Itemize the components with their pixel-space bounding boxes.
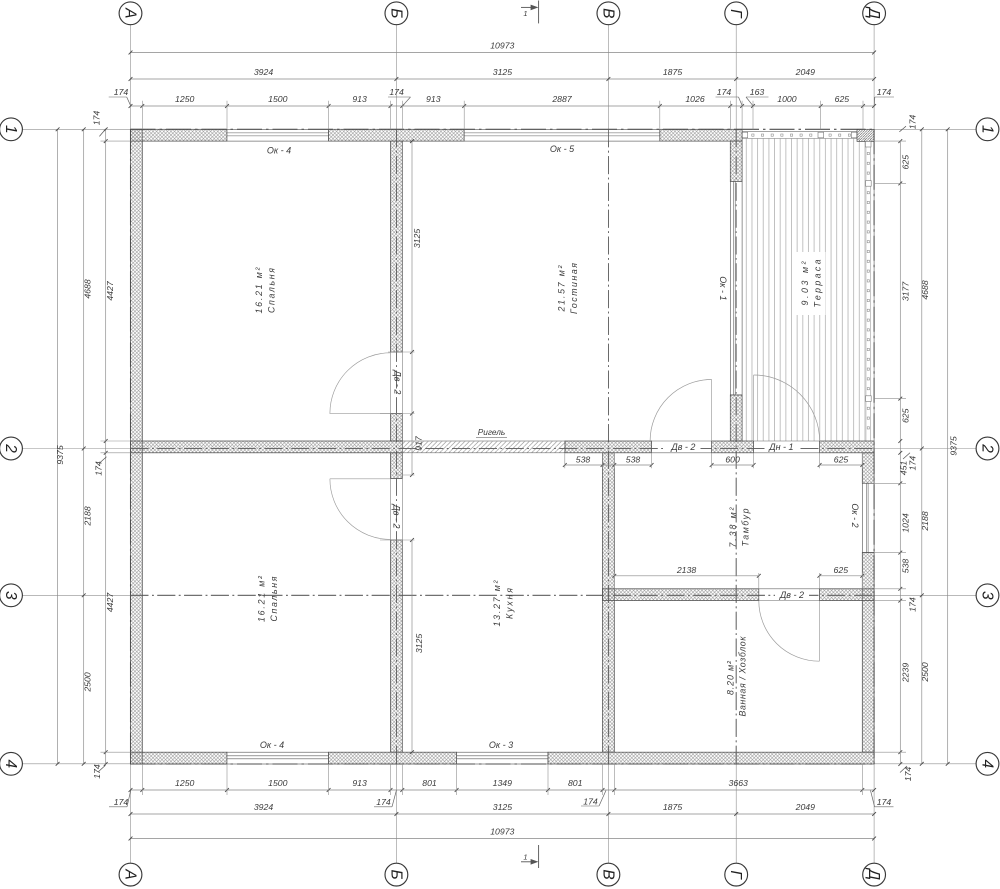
svg-text:625: 625 <box>900 408 910 423</box>
svg-text:Д: Д <box>865 867 882 880</box>
svg-text:4: 4 <box>978 759 995 768</box>
svg-text:2500: 2500 <box>83 672 93 692</box>
svg-text:Дв - 2: Дв - 2 <box>391 503 401 528</box>
svg-text:4688: 4688 <box>83 279 93 298</box>
svg-text:4688: 4688 <box>920 280 930 299</box>
svg-text:1000: 1000 <box>777 94 796 104</box>
svg-text:9375: 9375 <box>55 445 65 464</box>
svg-text:174: 174 <box>877 87 892 97</box>
svg-text:1250: 1250 <box>175 778 194 788</box>
svg-text:4427: 4427 <box>105 592 115 612</box>
svg-text:174: 174 <box>908 597 918 612</box>
svg-text:2500: 2500 <box>920 662 930 682</box>
svg-text:Ригель: Ригель <box>478 427 506 437</box>
svg-text:1500: 1500 <box>268 94 287 104</box>
svg-text:А: А <box>121 7 138 18</box>
svg-text:913: 913 <box>352 94 367 104</box>
svg-text:174: 174 <box>908 456 918 471</box>
svg-text:Ок - 3: Ок - 3 <box>489 740 513 750</box>
svg-text:Б: Б <box>387 8 404 18</box>
svg-text:1026: 1026 <box>685 94 704 104</box>
svg-text:Дн - 1: Дн - 1 <box>768 442 793 452</box>
svg-text:2138: 2138 <box>676 565 696 575</box>
svg-text:801: 801 <box>422 778 437 788</box>
svg-text:3924: 3924 <box>254 67 273 77</box>
svg-text:8.20 м²: 8.20 м² <box>726 660 736 695</box>
svg-text:174: 174 <box>114 797 129 807</box>
svg-text:7.38 м²: 7.38 м² <box>728 506 738 547</box>
svg-text:2049: 2049 <box>795 67 815 77</box>
svg-text:174: 174 <box>376 797 391 807</box>
svg-text:3125: 3125 <box>493 67 512 77</box>
svg-text:538: 538 <box>576 454 591 464</box>
svg-text:Ок - 5: Ок - 5 <box>550 144 575 154</box>
svg-text:538: 538 <box>900 559 910 574</box>
svg-text:9.03 м²: 9.03 м² <box>800 260 810 305</box>
svg-text:174: 174 <box>92 764 102 779</box>
svg-text:А: А <box>121 868 138 879</box>
svg-text:3: 3 <box>978 591 995 600</box>
svg-text:2887: 2887 <box>551 94 572 104</box>
svg-text:3125: 3125 <box>412 229 422 248</box>
svg-text:174: 174 <box>389 87 404 97</box>
svg-text:174: 174 <box>114 87 129 97</box>
svg-text:451: 451 <box>898 461 908 476</box>
svg-text:Дв - 2: Дв - 2 <box>392 369 402 394</box>
svg-text:Б: Б <box>387 870 404 880</box>
svg-text:913: 913 <box>426 94 441 104</box>
svg-text:16.21 м²: 16.21 м² <box>257 575 267 622</box>
svg-text:1875: 1875 <box>663 67 682 77</box>
svg-text:16.21 м²: 16.21 м² <box>254 266 264 313</box>
svg-text:625: 625 <box>900 155 910 170</box>
svg-text:913: 913 <box>352 778 367 788</box>
svg-text:2188: 2188 <box>83 506 93 526</box>
svg-text:174: 174 <box>908 115 918 130</box>
svg-text:21.57 м²: 21.57 м² <box>557 264 567 312</box>
svg-text:2239: 2239 <box>900 663 910 683</box>
svg-text:3125: 3125 <box>493 802 512 812</box>
svg-text:В: В <box>599 869 616 879</box>
svg-text:Ок - 4: Ок - 4 <box>267 146 291 156</box>
svg-text:2: 2 <box>2 443 19 453</box>
svg-text:625: 625 <box>834 454 849 464</box>
svg-text:Спальня: Спальня <box>269 576 279 621</box>
svg-text:174: 174 <box>717 87 732 97</box>
svg-text:2049: 2049 <box>795 802 815 812</box>
svg-text:1: 1 <box>978 125 995 134</box>
svg-text:Д: Д <box>865 6 882 19</box>
svg-text:1024: 1024 <box>900 513 910 532</box>
svg-text:2: 2 <box>978 443 995 453</box>
svg-text:174: 174 <box>583 796 598 806</box>
svg-text:3: 3 <box>2 591 19 600</box>
svg-text:2188: 2188 <box>920 511 930 531</box>
svg-text:Ок - 2: Ок - 2 <box>850 503 860 527</box>
svg-text:13.27 м²: 13.27 м² <box>492 579 502 626</box>
svg-text:174: 174 <box>92 111 102 126</box>
svg-text:Ок - 1: Ок - 1 <box>718 276 728 300</box>
svg-text:3125: 3125 <box>414 634 424 653</box>
svg-text:Спальня: Спальня <box>267 268 277 313</box>
svg-text:1: 1 <box>523 9 527 18</box>
svg-text:174: 174 <box>94 461 104 476</box>
svg-text:Дв - 2: Дв - 2 <box>670 442 695 452</box>
svg-text:600: 600 <box>725 454 740 464</box>
svg-text:917: 917 <box>414 435 424 451</box>
svg-text:Тамбур: Тамбур <box>741 508 751 546</box>
svg-text:4427: 4427 <box>105 280 115 300</box>
svg-text:174: 174 <box>877 797 892 807</box>
svg-text:Кухня: Кухня <box>505 588 515 619</box>
svg-text:1: 1 <box>2 125 19 134</box>
svg-text:1: 1 <box>523 853 527 862</box>
svg-text:10973: 10973 <box>490 40 514 50</box>
svg-text:9375: 9375 <box>949 436 959 455</box>
svg-text:1875: 1875 <box>663 802 682 812</box>
svg-text:3663: 3663 <box>729 778 748 788</box>
svg-text:Ванная / Хозблок: Ванная / Хозблок <box>737 636 747 717</box>
svg-text:625: 625 <box>834 565 849 575</box>
svg-text:538: 538 <box>626 454 641 464</box>
svg-text:1500: 1500 <box>268 778 287 788</box>
svg-text:10973: 10973 <box>490 826 514 836</box>
svg-text:Гостиная: Гостиная <box>569 263 579 314</box>
svg-text:Ок - 4: Ок - 4 <box>260 740 284 750</box>
svg-text:163: 163 <box>750 87 765 97</box>
svg-text:Дв - 2: Дв - 2 <box>779 590 804 600</box>
svg-text:4: 4 <box>2 759 19 768</box>
svg-text:3924: 3924 <box>254 802 273 812</box>
svg-text:В: В <box>599 8 616 18</box>
svg-text:1250: 1250 <box>175 94 194 104</box>
svg-text:625: 625 <box>835 94 850 104</box>
svg-text:801: 801 <box>568 778 583 788</box>
svg-text:3177: 3177 <box>900 281 910 301</box>
svg-text:1349: 1349 <box>493 778 512 788</box>
